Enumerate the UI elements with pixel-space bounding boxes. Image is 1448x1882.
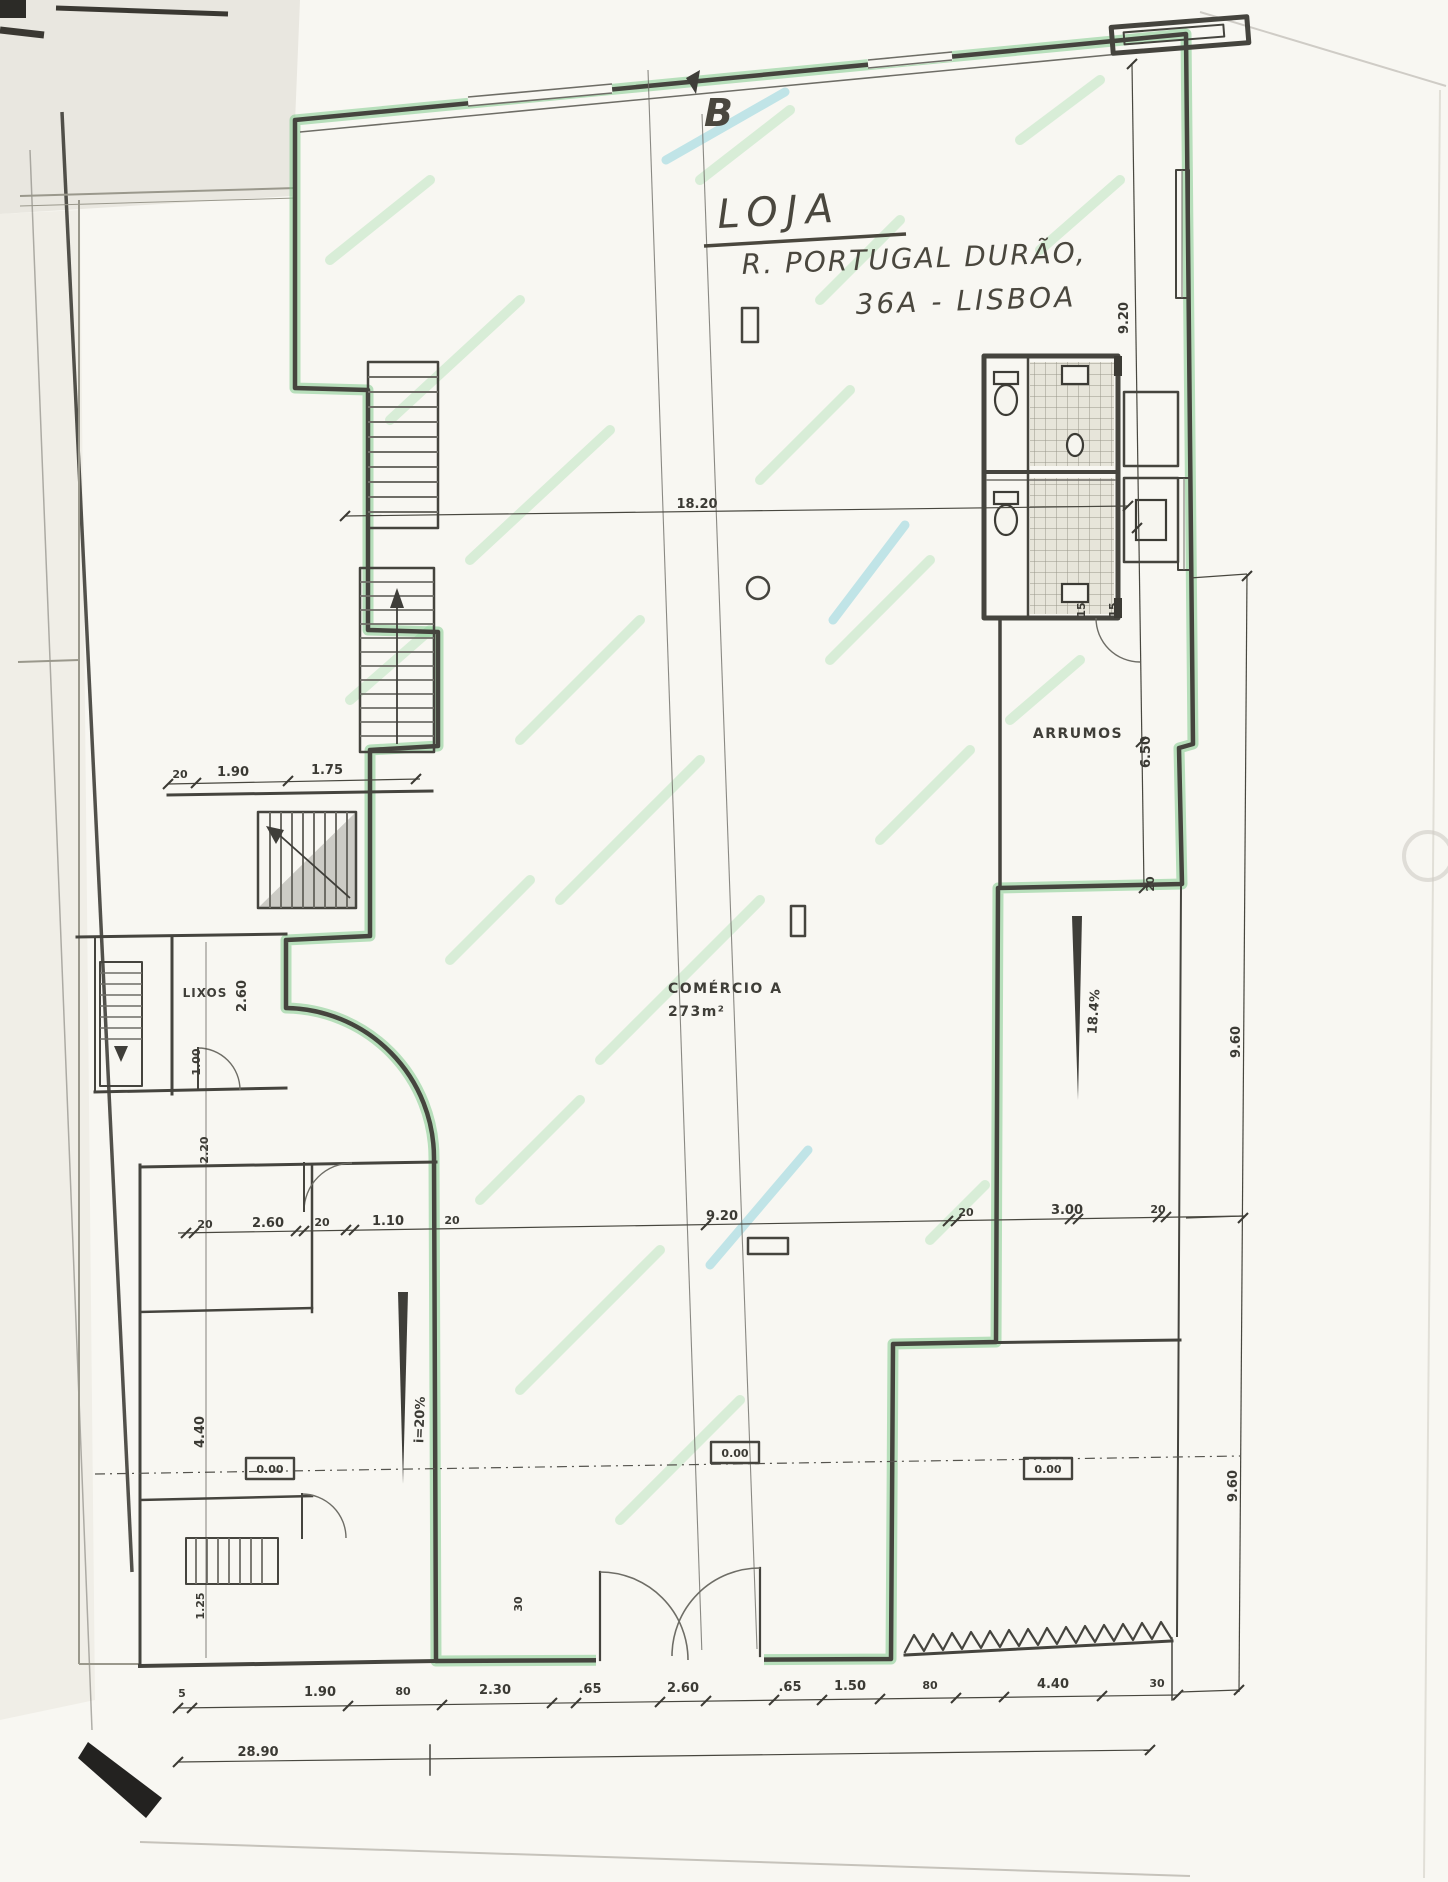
dimension-label: 1.90 [217, 765, 249, 780]
door-swing-arc [1096, 618, 1140, 662]
dimension-label: 20 [444, 1214, 460, 1227]
dimension-label: 20 [314, 1216, 330, 1229]
dimension-label: .65 [778, 1680, 801, 1695]
room-label-lixos: LIXOS [183, 986, 228, 1000]
dimension-label: 1.50 [834, 1679, 866, 1694]
dimension-label: 18.20 [676, 497, 717, 512]
dimension-label: 2.20 [198, 1136, 211, 1163]
dimension-label: 20 [172, 768, 188, 781]
section-marker: B [704, 91, 733, 135]
door-swing-arc [198, 1048, 240, 1090]
sink-fixture [1062, 366, 1088, 384]
ramp-arrow [398, 1292, 408, 1484]
dimension-label: 1.25 [194, 1592, 207, 1619]
dimension-label: .65 [578, 1682, 601, 1697]
dimension-label: 9.20 [706, 1209, 738, 1224]
dimension-label: 15 [1075, 602, 1088, 617]
dimension-label: 20 [958, 1206, 974, 1219]
doors [198, 1048, 764, 1666]
stair-mid-left [258, 812, 356, 908]
ramp-slope-label: i=20% [412, 1396, 429, 1443]
ramp-arrow [1072, 916, 1082, 1100]
dimension-label: 20 [197, 1218, 213, 1231]
dimension-label: 3.00 [1051, 1203, 1083, 1218]
handwritten-annotations: B LOJA R. PORTUGAL DURÃO, 36A - LISBOA [686, 70, 1087, 321]
sink-fixture [1062, 584, 1088, 602]
dimension-label: 1.00 [190, 1048, 203, 1075]
dimension-label: 9.60 [1229, 1026, 1244, 1058]
dimension-label: 4.40 [193, 1416, 208, 1448]
dimension-label: 9.60 [1226, 1470, 1241, 1502]
dimension-overall-width: 28.90 [173, 1745, 1155, 1775]
dimension-label: 2.60 [235, 980, 250, 1012]
handwritten-address-1: R. PORTUGAL DURÃO, [741, 236, 1087, 281]
dimension-label: 9.20 [1117, 302, 1132, 334]
room-label-arrumos: ARRUMOS [1033, 726, 1123, 742]
dimension-label: 6.50 [1139, 736, 1154, 768]
dimension-misc: 15 15 30 [512, 602, 1120, 1611]
dimension-label: 4.40 [1037, 1677, 1069, 1692]
dimension-label: 80 [395, 1685, 411, 1698]
dimension-bottom-row: 5 1.90 80 2.30 .65 2.60 .65 1.50 80 4.40… [173, 1677, 1183, 1713]
scanned-floor-plan: i=20% 18.4% 0.00 0.00 0.00 18.20 20 1.90… [0, 0, 1448, 1882]
ramp-slope-label: 18.4% [1085, 989, 1103, 1035]
dimension-label: 80 [922, 1679, 938, 1692]
handwritten-address-2: 36A - LISBOA [855, 280, 1077, 321]
dimension-label: 2.30 [479, 1683, 511, 1698]
dimension-label: 20 [1144, 876, 1157, 892]
level-value: 0.00 [256, 1463, 283, 1476]
toilet-fixture [994, 372, 1018, 415]
level-value: 0.00 [721, 1447, 748, 1460]
dimension-label: 2.60 [667, 1681, 699, 1696]
stair-bottom-left [186, 1538, 278, 1584]
dimension-label: 30 [1149, 1677, 1165, 1690]
dimension-upper-left-row: 20 1.90 1.75 [163, 763, 421, 789]
dimension-label: 1.75 [311, 763, 343, 778]
stair-direction-arrow [390, 588, 404, 608]
toilet-fixture [994, 492, 1018, 535]
dimension-label: 15 [1107, 602, 1120, 617]
bidet-fixture [1067, 434, 1083, 456]
room-label-comercio: COMÉRCIO A [668, 980, 783, 997]
dimension-right-column: 9.20 6.50 20 [1117, 59, 1157, 893]
stair-direction-arrow [114, 1046, 128, 1062]
level-value: 0.00 [1034, 1463, 1061, 1476]
entrance-double-door [596, 1568, 764, 1666]
stair-upper [360, 568, 434, 752]
dimension-left-column: 2.60 1.00 2.20 4.40 1.25 [190, 942, 250, 1658]
dimension-label: 20 [1150, 1203, 1166, 1216]
door-swing-arc [302, 1494, 346, 1538]
dimension-label: 2.60 [252, 1216, 284, 1231]
dimension-label: 30 [512, 1596, 525, 1612]
walls [77, 34, 1193, 1666]
dimension-label: 1.90 [304, 1685, 336, 1700]
handwritten-title: LOJA [716, 186, 842, 238]
dimension-label: 1.10 [372, 1214, 404, 1229]
room-area-comercio: 273m² [668, 1004, 725, 1020]
dimension-label: 5 [178, 1687, 186, 1700]
dimension-label: 28.90 [237, 1745, 278, 1760]
dimension-middle-row: 20 2.60 20 1.10 20 9.20 20 3.00 20 [178, 1203, 1245, 1238]
